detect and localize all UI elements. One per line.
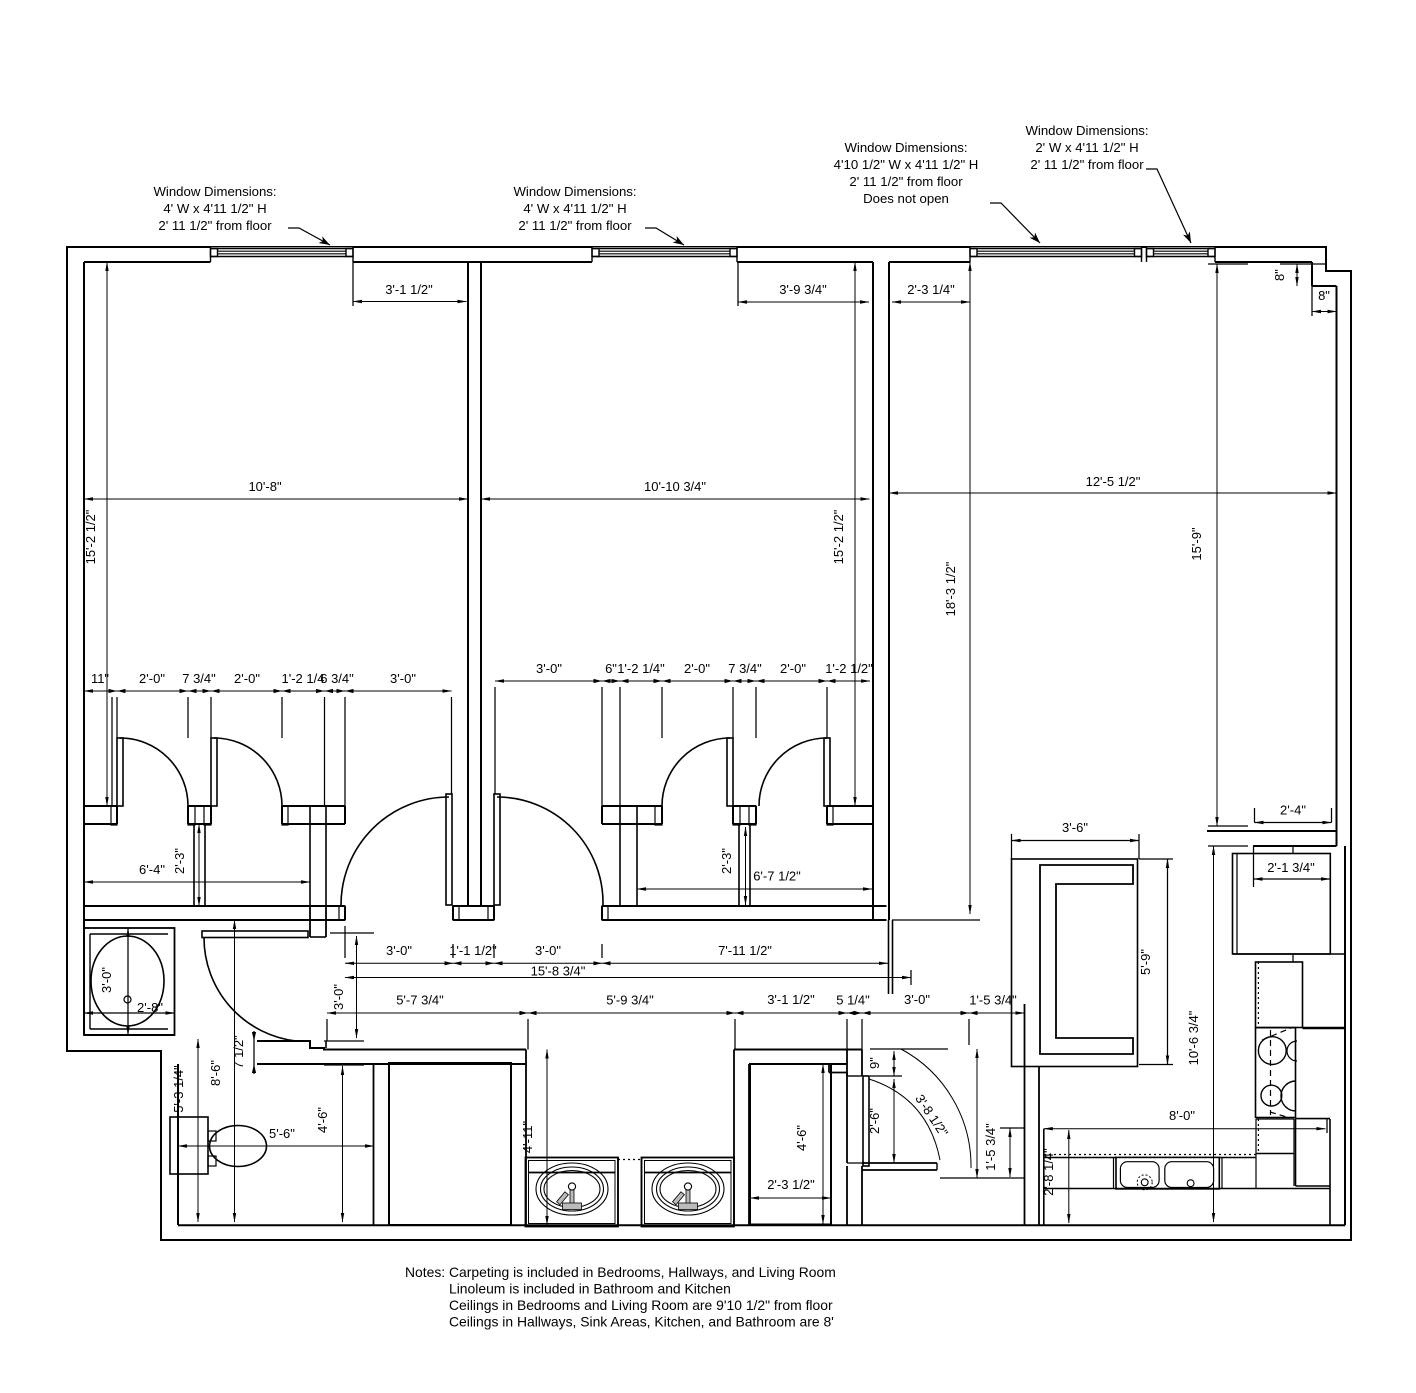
- svg-text:2'-8": 2'-8": [137, 1000, 163, 1015]
- svg-text:1'-2 1/2": 1'-2 1/2": [825, 661, 873, 676]
- svg-text:3'-9 3/4": 3'-9 3/4": [779, 282, 827, 297]
- svg-text:3'-1 1/2": 3'-1 1/2": [385, 282, 433, 297]
- svg-text:3'-6": 3'-6": [1062, 820, 1088, 835]
- svg-text:3'-0": 3'-0": [535, 943, 561, 958]
- svg-text:2' 11 1/2" from floor: 2' 11 1/2" from floor: [1030, 157, 1144, 172]
- svg-text:2'-0": 2'-0": [234, 671, 260, 686]
- svg-text:3'-0": 3'-0": [904, 992, 930, 1007]
- svg-text:Window Dimensions:: Window Dimensions:: [153, 184, 276, 199]
- svg-text:Ceilings in Bedrooms and Livin: Ceilings in Bedrooms and Living Room are…: [449, 1297, 833, 1313]
- svg-text:10'-10 3/4": 10'-10 3/4": [644, 479, 706, 494]
- svg-text:2'-4": 2'-4": [1280, 803, 1306, 818]
- svg-text:7 3/4": 7 3/4": [728, 661, 762, 676]
- svg-text:4' W x 4'11 1/2" H: 4' W x 4'11 1/2" H: [163, 201, 266, 216]
- svg-text:2'-3 1/2": 2'-3 1/2": [767, 1177, 815, 1192]
- svg-text:Notes: Carpeting is included: Notes: Carpeting is included in Bedrooms…: [405, 1264, 836, 1280]
- svg-text:6'-7 1/2": 6'-7 1/2": [753, 869, 801, 884]
- svg-text:3'-0": 3'-0": [331, 984, 346, 1010]
- svg-text:8": 8": [1318, 288, 1330, 303]
- svg-text:3'-0": 3'-0": [390, 671, 416, 686]
- svg-text:12'-5 1/2": 12'-5 1/2": [1086, 474, 1141, 489]
- svg-text:Does not open: Does not open: [863, 191, 949, 206]
- svg-text:4' W x 4'11 1/2" H: 4' W x 4'11 1/2" H: [523, 201, 626, 216]
- svg-text:5'-6": 5'-6": [269, 1126, 295, 1141]
- svg-text:2'-3": 2'-3": [172, 848, 187, 874]
- svg-text:2' 11 1/2" from floor: 2' 11 1/2" from floor: [518, 218, 632, 233]
- svg-text:2'-3 1/4": 2'-3 1/4": [907, 282, 955, 297]
- svg-text:15'-2 1/2": 15'-2 1/2": [83, 509, 98, 564]
- svg-text:Linoleum is included in Bathro: Linoleum is included in Bathroom and Kit…: [449, 1281, 731, 1297]
- svg-text:2' 11 1/2" from floor: 2' 11 1/2" from floor: [158, 218, 272, 233]
- svg-text:2'-0": 2'-0": [684, 661, 710, 676]
- svg-text:2' W x 4'11 1/2" H: 2' W x 4'11 1/2" H: [1035, 140, 1138, 155]
- svg-text:2'-6": 2'-6": [867, 1108, 882, 1134]
- svg-text:4'10 1/2" W x 4'11 1/2" H: 4'10 1/2" W x 4'11 1/2" H: [834, 157, 979, 172]
- svg-text:Ceilings in Hallways, Sink Are: Ceilings in Hallways, Sink Areas, Kitche…: [449, 1314, 834, 1330]
- svg-text:5'-9": 5'-9": [1138, 949, 1153, 975]
- svg-text:3'-1 1/2": 3'-1 1/2": [767, 992, 815, 1007]
- svg-text:10'-8": 10'-8": [248, 479, 282, 494]
- svg-text:7 1/2": 7 1/2": [231, 1035, 246, 1069]
- svg-text:8'-0": 8'-0": [1169, 1108, 1195, 1123]
- svg-text:2' 11 1/2" from floor: 2' 11 1/2" from floor: [849, 174, 963, 189]
- svg-text:1'-5 3/4": 1'-5 3/4": [969, 993, 1017, 1008]
- svg-text:2'-3": 2'-3": [719, 848, 734, 874]
- svg-text:3'-0": 3'-0": [99, 967, 114, 993]
- svg-text:8": 8": [1272, 269, 1287, 281]
- svg-text:6 3/4": 6 3/4": [320, 671, 354, 686]
- svg-text:1'-1 1/2": 1'-1 1/2": [449, 943, 497, 958]
- svg-text:18'-3 1/2": 18'-3 1/2": [943, 561, 958, 616]
- svg-text:2'-0": 2'-0": [139, 671, 165, 686]
- svg-text:10'-6 3/4": 10'-6 3/4": [1186, 1010, 1201, 1065]
- svg-text:6'-4": 6'-4": [139, 862, 165, 877]
- svg-text:2'-0": 2'-0": [780, 661, 806, 676]
- svg-text:1'-2 1/4": 1'-2 1/4": [617, 661, 665, 676]
- svg-text:Window Dimensions:: Window Dimensions:: [1025, 123, 1148, 138]
- svg-text:15'-9": 15'-9": [1189, 527, 1204, 561]
- svg-text:3'-0": 3'-0": [386, 943, 412, 958]
- svg-text:2'-1 3/4": 2'-1 3/4": [1267, 860, 1315, 875]
- svg-text:5'-7 3/4": 5'-7 3/4": [396, 993, 444, 1008]
- svg-text:5'-9 3/4": 5'-9 3/4": [606, 993, 654, 1008]
- svg-text:5'-3 1/4": 5'-3 1/4": [171, 1065, 186, 1113]
- svg-text:7 3/4": 7 3/4": [182, 671, 216, 686]
- svg-text:4'-6": 4'-6": [315, 1107, 330, 1133]
- svg-text:4'-11": 4'-11": [520, 1121, 535, 1154]
- svg-text:11": 11": [91, 671, 109, 686]
- svg-text:9": 9": [867, 1057, 882, 1069]
- svg-text:Window Dimensions:: Window Dimensions:: [844, 140, 967, 155]
- svg-text:1'-5 3/4": 1'-5 3/4": [983, 1123, 998, 1171]
- svg-text:Window Dimensions:: Window Dimensions:: [513, 184, 636, 199]
- svg-text:5 1/4": 5 1/4": [836, 993, 870, 1008]
- svg-text:8'-6": 8'-6": [208, 1060, 223, 1086]
- svg-text:2'-8 1/4": 2'-8 1/4": [1041, 1148, 1056, 1196]
- svg-text:3'-0": 3'-0": [536, 661, 562, 676]
- svg-text:6": 6": [605, 661, 617, 676]
- svg-text:15'-8 3/4": 15'-8 3/4": [531, 964, 586, 979]
- svg-text:15'-2 1/2": 15'-2 1/2": [831, 509, 846, 564]
- svg-text:4'-6": 4'-6": [794, 1125, 809, 1151]
- svg-text:1'-2 1/4: 1'-2 1/4: [282, 671, 325, 686]
- svg-text:7'-11 1/2": 7'-11 1/2": [718, 943, 772, 958]
